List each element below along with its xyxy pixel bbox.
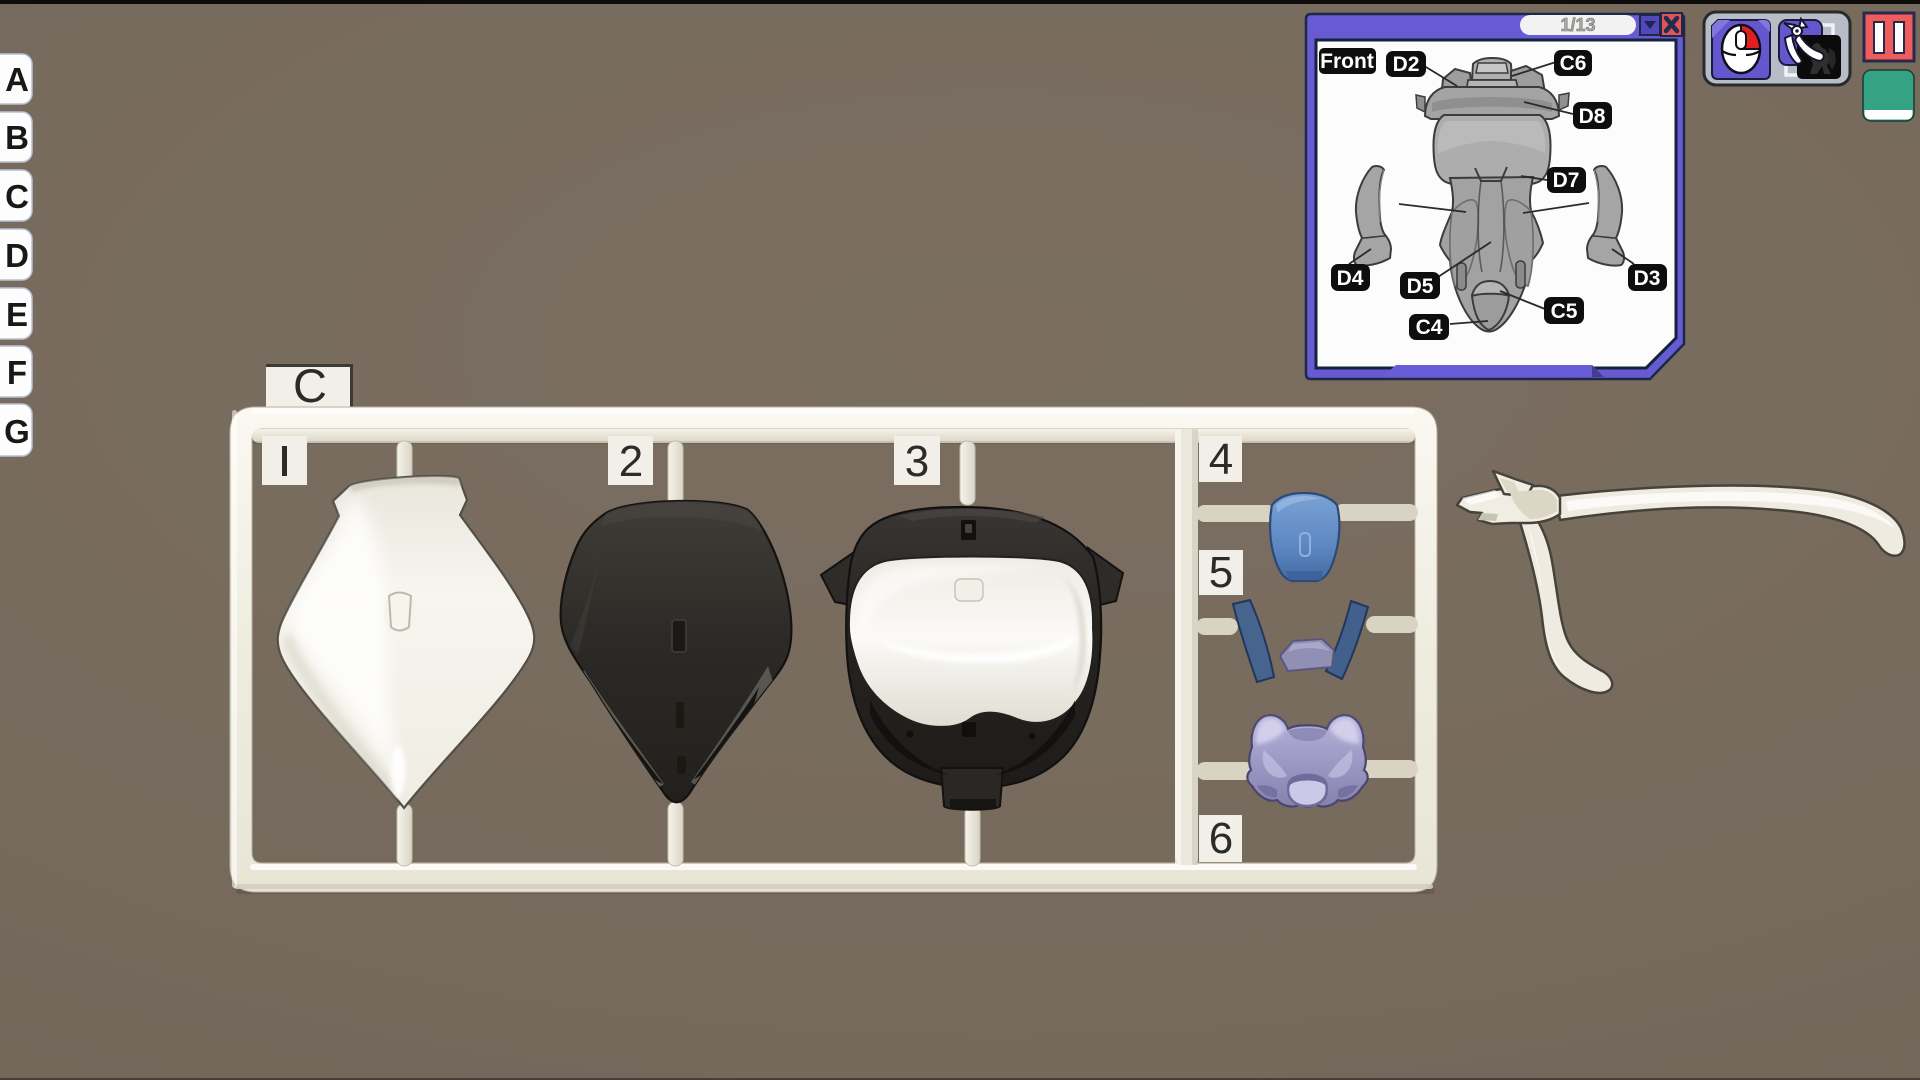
svg-text:E: E bbox=[6, 296, 28, 333]
svg-text:B: B bbox=[5, 119, 29, 156]
svg-text:D8: D8 bbox=[1579, 105, 1606, 128]
svg-text:D2: D2 bbox=[1393, 53, 1420, 76]
svg-text:D4: D4 bbox=[1337, 267, 1364, 290]
svg-text:G: G bbox=[4, 413, 30, 450]
svg-text:6: 6 bbox=[1209, 814, 1233, 863]
svg-text:4: 4 bbox=[1209, 435, 1233, 484]
svg-text:C: C bbox=[293, 359, 327, 412]
svg-text:A: A bbox=[5, 61, 29, 98]
svg-text:C: C bbox=[5, 178, 29, 215]
svg-text:C5: C5 bbox=[1551, 300, 1578, 323]
svg-text:1/13: 1/13 bbox=[1560, 15, 1595, 35]
svg-text:3: 3 bbox=[905, 437, 929, 486]
svg-text:5: 5 bbox=[1209, 548, 1233, 597]
svg-text:C6: C6 bbox=[1560, 52, 1587, 75]
svg-text:D7: D7 bbox=[1553, 169, 1580, 192]
svg-text:2: 2 bbox=[619, 437, 643, 486]
svg-text:D: D bbox=[5, 237, 29, 274]
svg-text:C4: C4 bbox=[1416, 316, 1443, 339]
svg-text:Front: Front bbox=[1320, 50, 1374, 73]
svg-text:D3: D3 bbox=[1634, 267, 1661, 290]
svg-text:F: F bbox=[7, 354, 27, 391]
svg-text:D5: D5 bbox=[1407, 275, 1434, 298]
